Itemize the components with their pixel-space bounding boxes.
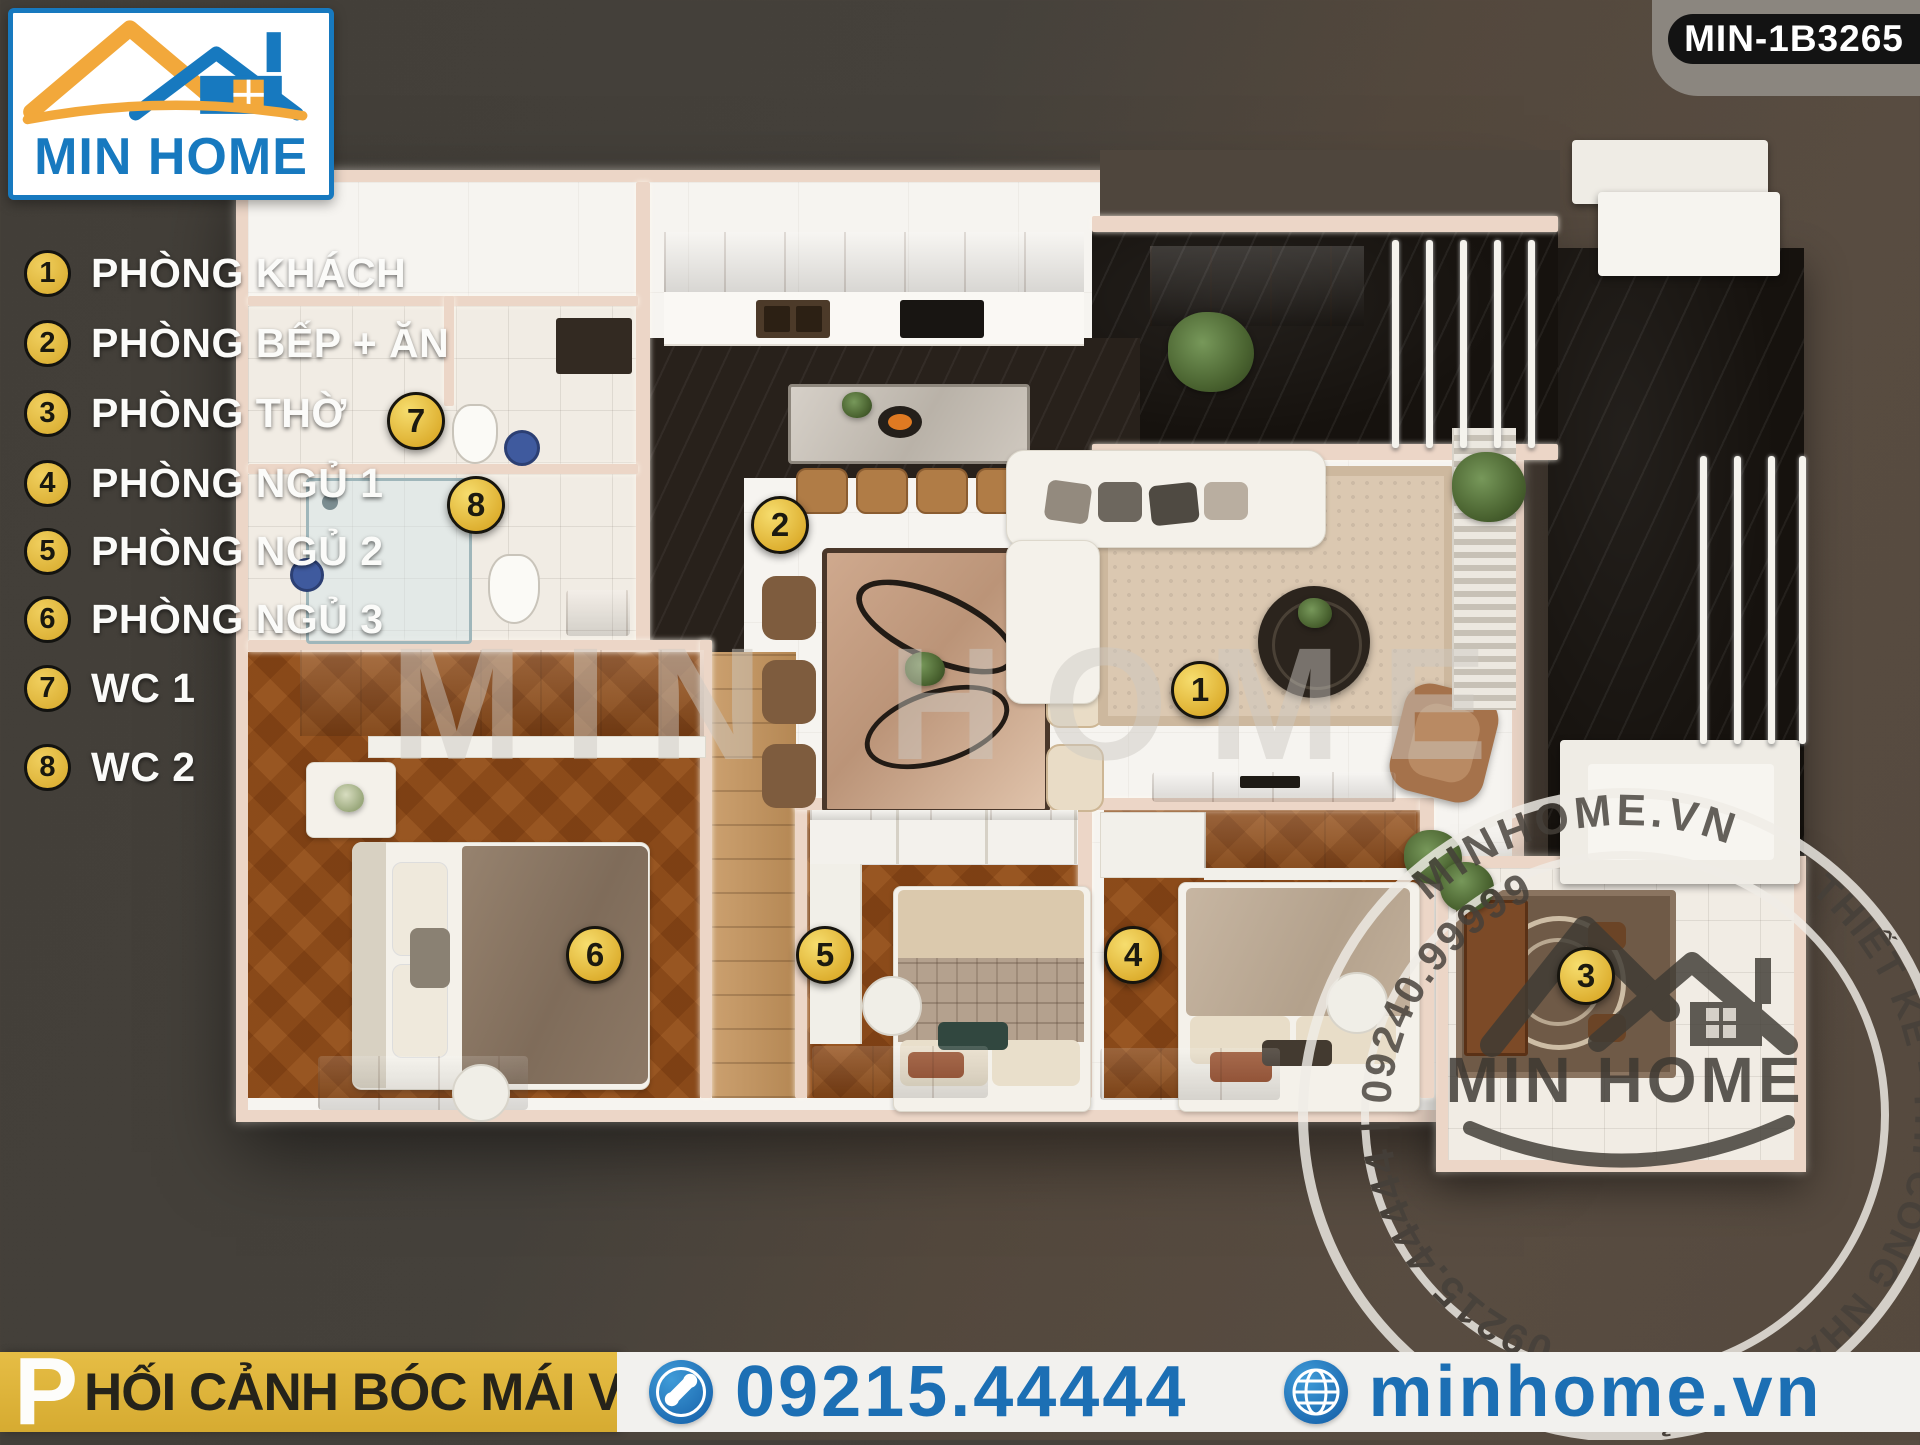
dining-chair-left [762, 744, 816, 808]
kitchen-sink-basin [764, 306, 790, 332]
room-marker-7: 7 [387, 392, 445, 450]
terrace-railing-bar [1494, 240, 1501, 448]
terrace-railing-bar [1392, 240, 1399, 448]
sofa-pillow [1043, 479, 1092, 525]
legend-item-7: 7 WC 1 [24, 665, 196, 712]
legend-number-badge: 1 [24, 250, 71, 297]
side-table-flowers [334, 784, 364, 812]
company-logo-house-icon [13, 17, 319, 129]
legend-item-1: 1 PHÒNG KHÁCH [24, 250, 406, 297]
bedroom1-desk [1100, 1048, 1280, 1100]
terrace-railing-bar [1528, 240, 1535, 448]
marker-number: 7 [407, 402, 425, 440]
bedroom2-chair [862, 976, 922, 1036]
background-cut [1100, 150, 1560, 226]
footer-bar: P HỐI CẢNH BÓC MÁI VIEW 1 09215.44444 mi… [0, 1352, 1920, 1432]
design-code-text: MIN-1B3265 [1684, 18, 1904, 60]
room-marker-5: 5 [796, 926, 854, 984]
legend-label: PHÒNG THỜ [91, 390, 347, 437]
dining-chair-right [1046, 744, 1104, 812]
bedroom3-wardrobe-front [368, 736, 706, 758]
design-code-badge: MIN-1B3265 [1668, 14, 1920, 64]
legend-number-badge: 6 [24, 596, 71, 643]
altar-plant [1440, 862, 1494, 912]
living-plant [1452, 452, 1526, 522]
legend-label: PHÒNG KHÁCH [91, 250, 406, 297]
kitchen-dark-floor-v [648, 338, 744, 653]
sink-wc1 [504, 430, 540, 466]
marker-number: 5 [816, 936, 834, 974]
legend-label: WC 2 [91, 744, 196, 791]
footer-contact: 09215.44444 minhome.vn [617, 1352, 1920, 1432]
bedroom3-chair [452, 1064, 510, 1122]
legend-number-badge: 4 [24, 460, 71, 507]
wc-top-wall [248, 296, 638, 306]
legend-item-5: 5 PHÒNG NGỦ 2 [24, 528, 384, 575]
sofa-pillow [1098, 482, 1142, 522]
kitchen-upper-cabinets [664, 232, 1084, 292]
footer-caption: P HỐI CẢNH BÓC MÁI VIEW 1 [0, 1352, 617, 1432]
legend-number-badge: 8 [24, 744, 71, 791]
terrace-top-wall [1092, 216, 1558, 232]
sofa-pillow [1148, 482, 1200, 527]
legend-label: PHÒNG NGỦ 2 [91, 528, 384, 575]
vanity-wc1 [556, 318, 632, 374]
marker-number: 1 [1191, 671, 1209, 709]
bedroom1-chair [1326, 972, 1388, 1034]
legend-number-badge: 7 [24, 665, 71, 712]
kitchen-stove [900, 300, 984, 338]
room-marker-8: 8 [447, 476, 505, 534]
room-marker-4: 4 [1104, 926, 1162, 984]
room-marker-6: 6 [566, 926, 624, 984]
bedroom1-wardrobe [1204, 812, 1416, 874]
sofa-chaise [1006, 540, 1100, 704]
bedroom1-cabinet [1100, 812, 1206, 878]
toilet-wc2 [488, 554, 540, 624]
dining-chair-left [762, 576, 816, 640]
marker-number: 2 [771, 506, 789, 544]
table-plant [905, 652, 945, 686]
bedroom2-sheet [898, 890, 1084, 960]
legend-label: PHÒNG BẾP + ĂN [91, 320, 449, 367]
bedroom1-wardrobe-front [1204, 868, 1416, 880]
bedroom2-wardrobe-top [810, 810, 1078, 820]
legend-number-badge: 5 [24, 528, 71, 575]
legend-label: WC 1 [91, 665, 196, 712]
fruit-oranges [888, 414, 912, 430]
bedroom3-wardrobe [300, 650, 704, 736]
wc-right-wall [636, 182, 650, 652]
phone-icon [649, 1360, 713, 1424]
marker-number: 6 [586, 936, 604, 974]
vanity-wc2 [566, 590, 630, 636]
porch-step-lower-2 [1588, 764, 1774, 860]
tv-device [1240, 776, 1300, 788]
porch-railing-bar [1799, 456, 1806, 744]
kitchen-sink-basin [796, 306, 822, 332]
terrace-railing-bar [1460, 240, 1467, 448]
legend-item-3: 3 PHÒNG THỜ [24, 390, 347, 437]
room-marker-3: 3 [1557, 947, 1615, 1005]
legend-number-badge: 3 [24, 390, 71, 437]
bedroom3-pillow-accent [410, 928, 450, 988]
company-logo-text: MIN HOME [13, 127, 329, 187]
legend-number-badge: 2 [24, 320, 71, 367]
dining-chair-left [762, 660, 816, 724]
porch-railing-bar [1700, 456, 1707, 744]
porch-railing-bar [1734, 456, 1741, 744]
island-plant [842, 392, 872, 418]
caption-initial: P [14, 1354, 78, 1430]
toilet-wc1 [452, 404, 498, 464]
porch-railing-bar [1768, 456, 1775, 744]
website-url: minhome.vn [1368, 1351, 1822, 1433]
island-chair [916, 468, 968, 514]
legend-label: PHÒNG NGỦ 1 [91, 460, 384, 507]
company-logo: MIN HOME [8, 8, 334, 200]
porch-step-upper-2 [1598, 192, 1780, 276]
sofa-pillow [1204, 482, 1248, 520]
bedroom2-desk [812, 1046, 988, 1098]
altar-stool [1588, 1014, 1626, 1042]
room-marker-1: 1 [1171, 661, 1229, 719]
altar-stool [1588, 922, 1626, 950]
marker-number: 4 [1124, 936, 1142, 974]
coffee-table-plant [1298, 598, 1332, 628]
bedroom3-headboard [352, 842, 386, 1088]
legend-label: PHÒNG NGỦ 3 [91, 596, 384, 643]
terrace-railing-bar [1426, 240, 1433, 448]
living-plant [1168, 312, 1254, 392]
marker-number: 8 [467, 486, 485, 524]
room-marker-2: 2 [751, 496, 809, 554]
globe-icon [1284, 1360, 1348, 1424]
legend-item-6: 6 PHÒNG NGỦ 3 [24, 596, 384, 643]
legend-item-8: 8 WC 2 [24, 744, 196, 791]
altar-cabinet [1464, 900, 1528, 1056]
island-chair [796, 468, 848, 514]
phone-number: 09215.44444 [735, 1351, 1188, 1433]
terrace-deck [1150, 246, 1364, 326]
legend-item-4: 4 PHÒNG NGỦ 1 [24, 460, 384, 507]
kitchen-counter [664, 292, 1084, 346]
island-chair [856, 468, 908, 514]
marker-number: 3 [1577, 957, 1595, 995]
legend-item-2: 2 PHÒNG BẾP + ĂN [24, 320, 449, 367]
